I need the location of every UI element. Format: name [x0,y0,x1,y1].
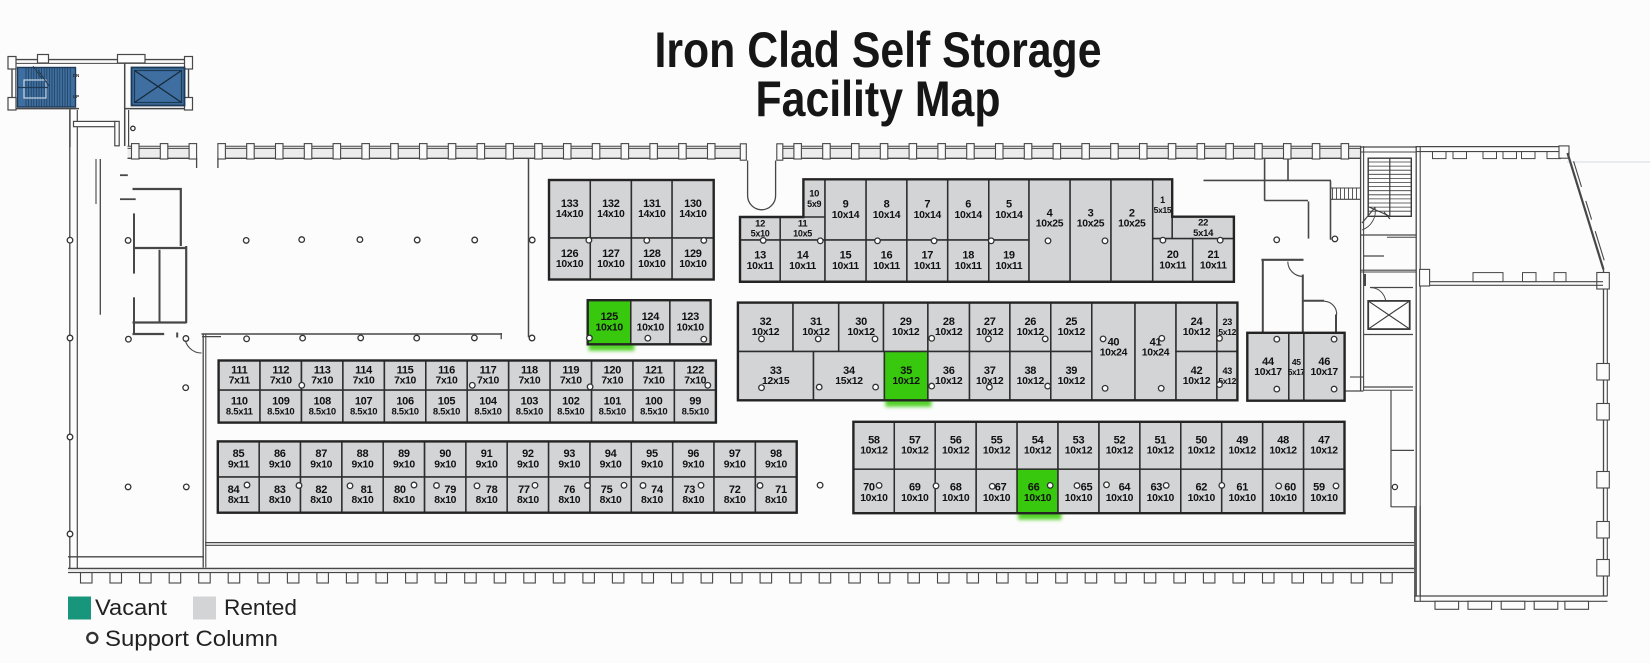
svg-text:10x10: 10x10 [942,493,970,504]
svg-text:50: 50 [1195,435,1207,447]
svg-text:5x15: 5x15 [1154,205,1172,215]
svg-text:85: 85 [233,448,245,460]
svg-text:57: 57 [909,435,921,447]
svg-text:7x10: 7x10 [601,376,623,387]
svg-text:67: 67 [995,482,1007,494]
svg-text:13: 13 [754,250,766,262]
svg-text:66: 66 [1028,482,1040,494]
svg-text:86: 86 [274,448,286,460]
svg-text:10x12: 10x12 [1183,376,1211,387]
svg-text:9x10: 9x10 [558,459,580,470]
svg-text:10x12: 10x12 [1058,376,1086,387]
svg-text:9x10: 9x10 [393,459,415,470]
svg-text:8.5x11: 8.5x11 [226,407,254,418]
svg-text:Vacant: Vacant [95,595,167,620]
svg-text:9x10: 9x10 [765,459,787,470]
svg-text:10x11: 10x11 [832,261,859,272]
svg-text:17: 17 [921,250,933,262]
svg-text:10x12: 10x12 [942,446,970,457]
svg-text:10x12: 10x12 [1183,327,1211,338]
svg-text:114: 114 [355,364,373,376]
svg-text:10x11: 10x11 [914,261,941,272]
svg-text:133: 133 [561,198,579,210]
svg-text:8.5x10: 8.5x10 [309,407,336,418]
svg-text:88: 88 [357,448,369,460]
svg-text:8x10: 8x10 [724,495,746,506]
svg-text:10x10: 10x10 [1106,493,1134,504]
svg-text:10x17: 10x17 [1310,367,1338,378]
svg-text:102: 102 [562,395,580,407]
svg-text:9x10: 9x10 [724,459,746,470]
svg-text:9x10: 9x10 [641,459,663,470]
svg-text:68: 68 [950,482,962,494]
svg-text:8.5x10: 8.5x10 [516,407,543,418]
svg-text:5x17: 5x17 [1288,368,1305,377]
svg-text:8x11: 8x11 [228,495,250,506]
svg-text:105: 105 [438,395,456,407]
svg-text:10x12: 10x12 [1017,376,1045,387]
svg-text:9x10: 9x10 [352,459,374,470]
svg-text:7x10: 7x10 [477,376,499,387]
svg-text:81: 81 [361,484,373,496]
svg-text:7x11: 7x11 [229,376,251,387]
svg-text:55: 55 [991,435,1003,447]
svg-text:10x12: 10x12 [1106,446,1134,457]
svg-text:8.5x10: 8.5x10 [557,407,584,418]
svg-text:47: 47 [1318,435,1330,447]
svg-text:10x11: 10x11 [995,261,1022,272]
svg-text:8.5x10: 8.5x10 [599,407,626,418]
svg-text:8.5x10: 8.5x10 [640,407,667,418]
svg-text:8x10: 8x10 [765,495,787,506]
svg-text:10x10: 10x10 [983,493,1011,504]
svg-text:9x11: 9x11 [228,459,250,470]
svg-text:8x10: 8x10 [310,495,332,506]
svg-text:10x17: 10x17 [1254,367,1282,378]
svg-text:48: 48 [1277,435,1289,447]
svg-text:14x10: 14x10 [638,209,666,220]
svg-text:7x10: 7x10 [643,376,665,387]
svg-text:Rented: Rented [224,595,297,620]
svg-text:15: 15 [840,250,852,262]
svg-text:9x10: 9x10 [476,459,498,470]
svg-text:8x10: 8x10 [393,495,415,506]
svg-text:52: 52 [1114,435,1126,447]
svg-text:DN: DN [73,73,80,78]
svg-text:10x12: 10x12 [1024,446,1052,457]
svg-text:Support Column: Support Column [105,626,278,651]
svg-text:10x24: 10x24 [1142,348,1170,359]
svg-text:65: 65 [1081,482,1093,494]
svg-text:99: 99 [689,395,701,407]
svg-text:9x10: 9x10 [517,459,539,470]
svg-text:10x12: 10x12 [892,376,920,387]
svg-text:8x10: 8x10 [558,495,580,506]
svg-text:UP: UP [73,94,79,99]
svg-text:40: 40 [1108,337,1120,349]
svg-text:10x12: 10x12 [1188,446,1216,457]
svg-text:54: 54 [1032,435,1045,447]
svg-text:60: 60 [1284,482,1296,494]
svg-text:61: 61 [1236,482,1248,494]
svg-text:10x10: 10x10 [1228,493,1256,504]
svg-text:131: 131 [643,198,661,210]
svg-text:109: 109 [272,395,290,407]
svg-text:10x10: 10x10 [1065,493,1093,504]
svg-text:Iron Clad Self Storage: Iron Clad Self Storage [655,22,1102,78]
svg-text:10x24: 10x24 [1100,348,1128,359]
svg-text:121: 121 [645,364,663,376]
svg-text:95: 95 [646,448,658,460]
svg-text:10x12: 10x12 [847,327,875,338]
svg-text:115: 115 [397,364,414,376]
svg-text:10x14: 10x14 [954,210,982,221]
svg-text:56: 56 [950,435,962,447]
svg-text:9x10: 9x10 [434,459,456,470]
svg-text:8x10: 8x10 [352,495,374,506]
svg-text:103: 103 [521,395,539,407]
svg-text:7x10: 7x10 [436,376,458,387]
svg-text:113: 113 [314,364,331,376]
svg-text:124: 124 [642,311,661,323]
svg-text:93: 93 [563,448,575,460]
svg-text:33: 33 [770,365,782,377]
svg-text:8.5x10: 8.5x10 [391,407,418,418]
svg-text:84: 84 [228,484,241,496]
svg-text:10x25: 10x25 [1036,219,1064,230]
svg-text:74: 74 [651,484,664,496]
svg-text:14x10: 14x10 [679,209,707,220]
svg-text:82: 82 [315,484,327,496]
svg-text:10x11: 10x11 [1200,260,1227,271]
svg-text:10x12: 10x12 [901,446,929,457]
svg-text:8x10: 8x10 [682,495,704,506]
svg-text:Facility Map: Facility Map [756,71,1001,127]
svg-text:10x10: 10x10 [1269,493,1297,504]
svg-text:7x10: 7x10 [560,376,582,387]
svg-text:70: 70 [863,482,875,494]
svg-text:69: 69 [909,482,921,494]
svg-text:10x12: 10x12 [983,446,1011,457]
svg-text:106: 106 [396,395,414,407]
svg-text:21: 21 [1207,249,1219,261]
svg-text:71: 71 [775,484,787,496]
svg-text:10x10: 10x10 [860,493,888,504]
svg-text:132: 132 [602,198,620,210]
svg-text:10x12: 10x12 [860,446,888,457]
svg-text:45: 45 [1292,357,1301,367]
svg-text:62: 62 [1195,482,1207,494]
svg-text:123: 123 [681,311,699,323]
svg-text:10x12: 10x12 [752,327,780,338]
svg-text:58: 58 [868,435,880,447]
svg-text:59: 59 [1313,482,1325,494]
svg-text:10x25: 10x25 [1118,219,1146,230]
svg-text:83: 83 [274,484,286,496]
svg-text:10x12: 10x12 [1017,327,1045,338]
svg-text:87: 87 [315,448,327,460]
svg-text:7x10: 7x10 [518,376,540,387]
svg-text:100: 100 [645,395,663,407]
svg-text:76: 76 [563,484,575,496]
svg-text:10x5: 10x5 [793,229,812,239]
svg-text:39: 39 [1065,365,1077,377]
svg-text:10x10: 10x10 [1024,493,1052,504]
svg-text:10x12: 10x12 [1310,446,1338,457]
svg-text:101: 101 [604,395,622,407]
svg-text:18: 18 [962,250,974,262]
svg-text:10x12: 10x12 [1065,446,1093,457]
svg-text:125: 125 [600,311,618,323]
svg-text:111: 111 [231,364,247,376]
svg-text:116: 116 [438,364,455,376]
svg-text:9x10: 9x10 [310,459,332,470]
svg-text:10x11: 10x11 [747,261,774,272]
svg-text:8x10: 8x10 [476,495,498,506]
svg-text:119: 119 [562,364,579,376]
svg-text:72: 72 [729,484,741,496]
svg-text:19: 19 [1003,250,1015,262]
svg-text:12x15: 12x15 [762,376,790,387]
svg-text:97: 97 [729,448,741,460]
svg-text:122: 122 [686,364,704,376]
svg-text:3: 3 [1088,207,1094,219]
svg-text:79: 79 [444,484,456,496]
svg-text:37: 37 [984,365,996,377]
svg-text:120: 120 [604,364,622,376]
svg-text:10x12: 10x12 [1147,446,1175,457]
svg-text:7x10: 7x10 [684,376,706,387]
svg-text:10x25: 10x25 [1077,219,1105,230]
svg-text:10x10: 10x10 [638,259,666,270]
svg-text:35: 35 [900,365,912,377]
svg-text:80: 80 [394,484,406,496]
svg-text:118: 118 [521,364,538,376]
svg-text:42: 42 [1191,365,1203,377]
svg-text:98: 98 [770,448,782,460]
svg-text:5x9: 5x9 [807,199,821,209]
svg-text:38: 38 [1024,365,1036,377]
svg-text:130: 130 [684,198,702,210]
svg-text:10x12: 10x12 [892,327,920,338]
svg-text:64: 64 [1119,482,1132,494]
svg-text:43: 43 [1222,366,1232,376]
svg-text:8x10: 8x10 [641,495,663,506]
svg-text:110: 110 [231,395,248,407]
svg-text:10x10: 10x10 [679,259,707,270]
svg-text:8.5x10: 8.5x10 [350,407,377,418]
svg-text:10x12: 10x12 [935,376,963,387]
svg-text:34: 34 [843,365,856,377]
svg-text:10x11: 10x11 [873,261,900,272]
svg-text:90: 90 [439,448,451,460]
svg-text:94: 94 [605,448,618,460]
svg-text:89: 89 [398,448,410,460]
svg-text:23: 23 [1222,317,1232,327]
svg-text:10x12: 10x12 [1228,446,1256,457]
svg-text:9x10: 9x10 [682,459,704,470]
svg-text:10x11: 10x11 [955,261,982,272]
svg-text:10x14: 10x14 [995,210,1023,221]
svg-text:108: 108 [313,395,331,407]
svg-text:10x10: 10x10 [597,259,625,270]
svg-text:91: 91 [481,448,493,460]
svg-text:10x10: 10x10 [1188,493,1216,504]
svg-text:10x10: 10x10 [595,322,623,333]
svg-text:1: 1 [1160,195,1165,205]
svg-text:92: 92 [522,448,534,460]
svg-text:8.5x10: 8.5x10 [267,407,294,418]
svg-text:8.5x10: 8.5x10 [682,407,709,418]
svg-text:117: 117 [480,364,497,376]
svg-text:14x10: 14x10 [597,209,625,220]
svg-text:20: 20 [1167,249,1179,261]
svg-text:16: 16 [881,250,893,262]
svg-text:112: 112 [272,364,289,376]
svg-text:77: 77 [518,484,530,496]
svg-text:8x10: 8x10 [600,495,622,506]
svg-text:75: 75 [601,484,613,496]
svg-text:14: 14 [797,250,810,262]
svg-text:7x10: 7x10 [353,376,375,387]
svg-text:63: 63 [1150,482,1162,494]
svg-text:73: 73 [683,484,695,496]
svg-text:7x10: 7x10 [394,376,416,387]
svg-text:10x12: 10x12 [935,327,963,338]
svg-text:15x12: 15x12 [835,376,863,387]
svg-text:10x10: 10x10 [676,322,704,333]
svg-text:10x14: 10x14 [873,210,901,221]
svg-text:36: 36 [943,365,955,377]
svg-text:10x10: 10x10 [1310,493,1338,504]
svg-text:10x10: 10x10 [637,322,665,333]
svg-text:8x10: 8x10 [269,495,291,506]
svg-text:8x10: 8x10 [434,495,456,506]
svg-text:104: 104 [479,395,498,407]
svg-text:9x10: 9x10 [600,459,622,470]
svg-text:10x14: 10x14 [914,210,942,221]
svg-text:10x11: 10x11 [1159,260,1186,271]
svg-text:8.5x10: 8.5x10 [433,407,460,418]
svg-text:10x10: 10x10 [556,259,584,270]
svg-text:5x10: 5x10 [751,229,770,239]
svg-text:96: 96 [687,448,699,460]
svg-text:10x10: 10x10 [901,493,929,504]
svg-text:107: 107 [355,395,373,407]
svg-text:9x10: 9x10 [269,459,291,470]
svg-text:10x10: 10x10 [1147,493,1175,504]
svg-text:10x14: 10x14 [832,210,860,221]
svg-text:10x11: 10x11 [789,261,816,272]
svg-text:7x10: 7x10 [270,376,292,387]
svg-text:8.5x10: 8.5x10 [474,407,501,418]
svg-text:7x10: 7x10 [311,376,333,387]
svg-text:5x14: 5x14 [1193,228,1214,239]
svg-text:8x10: 8x10 [517,495,539,506]
svg-text:10x12: 10x12 [1269,446,1297,457]
svg-text:51: 51 [1154,435,1166,447]
svg-text:10x12: 10x12 [1058,327,1086,338]
svg-text:2: 2 [1129,207,1135,219]
svg-text:49: 49 [1236,435,1248,447]
svg-text:14x10: 14x10 [556,209,584,220]
svg-text:53: 53 [1073,435,1085,447]
svg-text:78: 78 [486,484,498,496]
